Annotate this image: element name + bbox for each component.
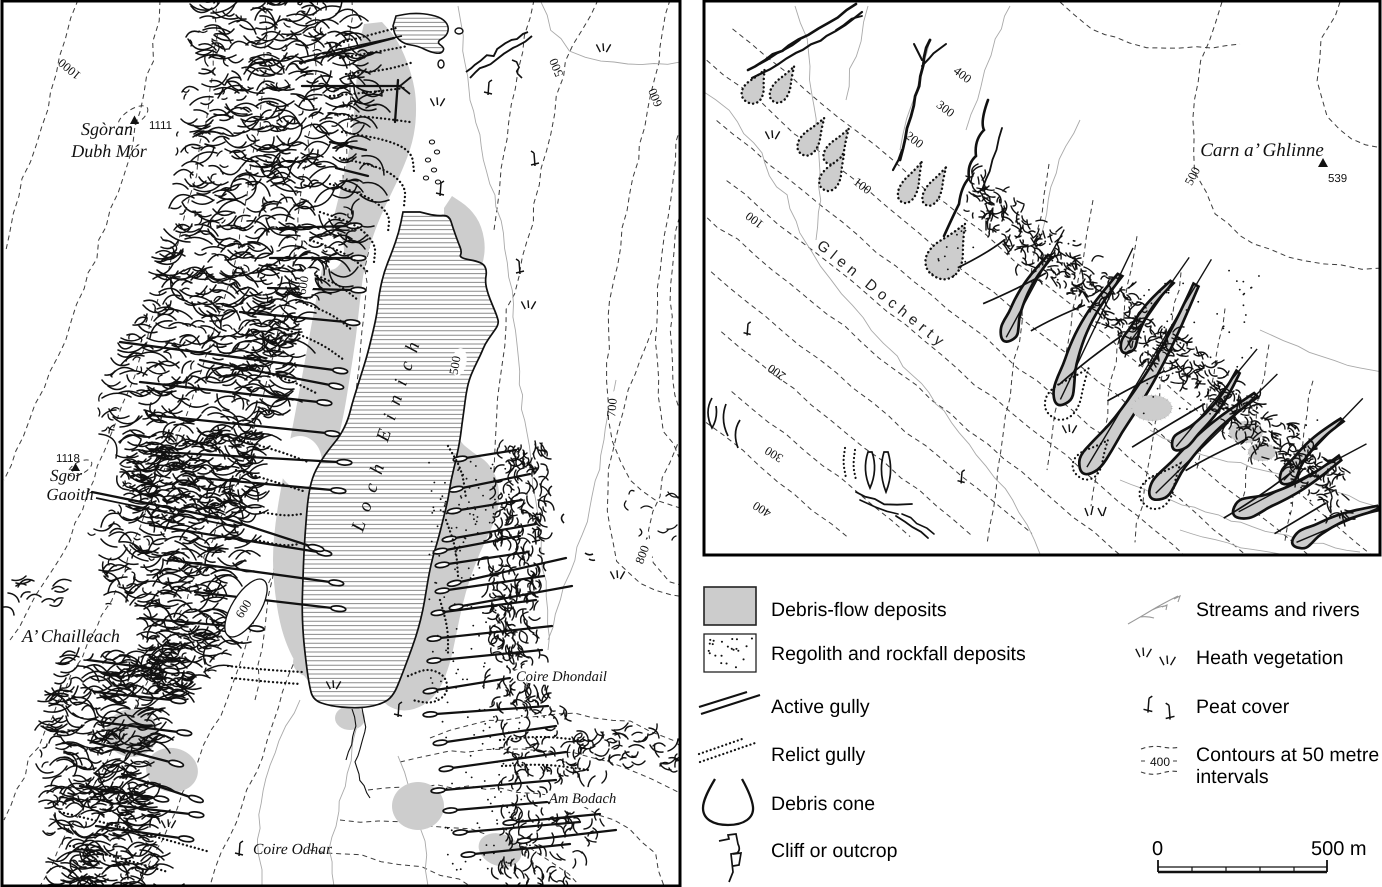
svg-text:Debris cone: Debris cone <box>771 793 875 815</box>
svg-text:400: 400 <box>1150 755 1170 769</box>
svg-text:Sgòr: Sgòr <box>50 466 83 485</box>
svg-text:539: 539 <box>1328 173 1347 185</box>
svg-text:Coire Dhondail: Coire Dhondail <box>516 669 607 685</box>
svg-text:Sgòran: Sgòran <box>81 119 133 139</box>
svg-text:Contours at 50 metre: Contours at 50 metre <box>1196 744 1379 766</box>
svg-text:Am Bodach: Am Bodach <box>548 791 616 807</box>
svg-text:Carn a’ Ghlinne: Carn a’ Ghlinne <box>1200 140 1324 161</box>
svg-text:500 m: 500 m <box>1311 838 1367 860</box>
svg-text:Relict gully: Relict gully <box>771 744 866 766</box>
svg-text:Cliff or outcrop: Cliff or outcrop <box>771 840 898 862</box>
svg-text:Heath vegetation: Heath vegetation <box>1196 647 1343 669</box>
svg-text:Active gully: Active gully <box>771 696 870 718</box>
svg-text:1111: 1111 <box>149 120 172 132</box>
svg-text:Regolith and rockfall deposits: Regolith and rockfall deposits <box>771 643 1026 665</box>
svg-text:Dubh Mór: Dubh Mór <box>70 141 148 161</box>
svg-text:Peat cover: Peat cover <box>1196 696 1290 718</box>
svg-text:Coire Odhar: Coire Odhar <box>253 841 333 858</box>
svg-text:0: 0 <box>1152 838 1163 860</box>
svg-text:Streams and rivers: Streams and rivers <box>1196 599 1360 621</box>
svg-text:intervals: intervals <box>1196 766 1269 788</box>
svg-text:A’ Chailleach: A’ Chailleach <box>21 626 120 646</box>
svg-text:Gaoith: Gaoith <box>46 485 93 504</box>
svg-text:Debris-flow deposits: Debris-flow deposits <box>771 599 947 621</box>
svg-text:700: 700 <box>604 398 620 418</box>
svg-text:1118: 1118 <box>56 453 80 465</box>
